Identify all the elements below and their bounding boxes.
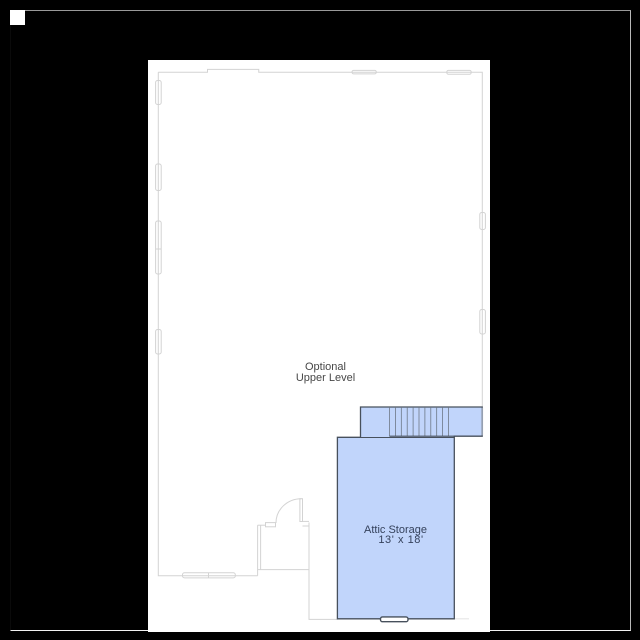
svg-text:13' x 18': 13' x 18' bbox=[378, 534, 423, 546]
svg-text:Upper Level: Upper Level bbox=[296, 372, 355, 384]
